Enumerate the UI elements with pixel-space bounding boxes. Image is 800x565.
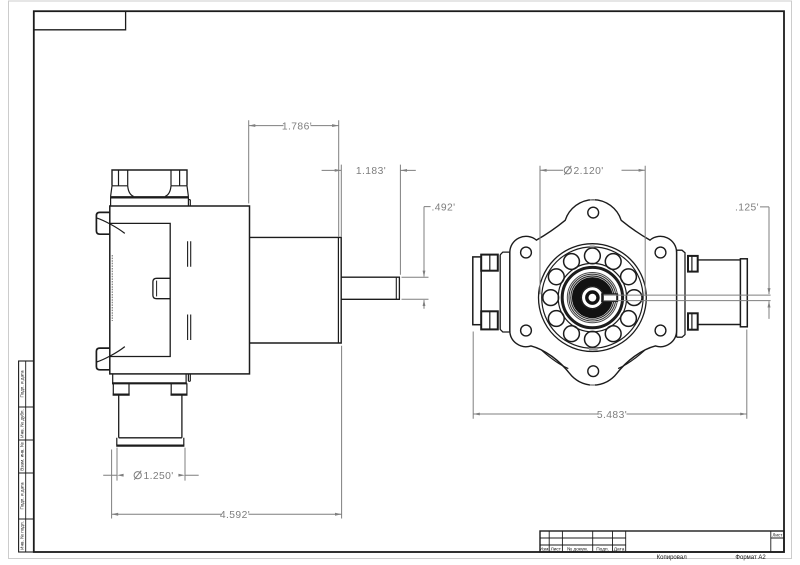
svg-text:.125': .125' [735,203,759,214]
svg-text:Лист: Лист [551,546,562,552]
svg-text:Копировал: Копировал [657,555,688,561]
svg-text:Инв. № дубл.: Инв. № дубл. [20,409,25,437]
svg-text:.492': .492' [432,202,456,213]
svg-text:1.183': 1.183' [356,166,386,177]
svg-text:№ докум.: № докум. [567,546,588,552]
svg-text:1.786': 1.786' [282,121,312,132]
svg-text:Инв. № подл.: Инв. № подл. [20,521,25,550]
svg-text:Подп. и дата: Подп. и дата [20,482,25,510]
svg-text:Подп.: Подп. [596,546,609,552]
svg-text:5.483': 5.483' [597,410,627,421]
svg-text:4.592': 4.592' [220,510,250,521]
svg-text:Формат А2: Формат А2 [735,555,766,561]
svg-text:Изм.: Изм. [539,546,549,552]
svg-text:Лист: Лист [772,532,783,537]
svg-text:2.120': 2.120' [574,166,604,177]
svg-text:Подп. и дата: Подп. и дата [20,370,25,398]
svg-text:Дата: Дата [614,546,625,552]
svg-text:Взам. инв. №: Взам. инв. № [20,442,25,471]
svg-text:1.250': 1.250' [144,471,174,482]
